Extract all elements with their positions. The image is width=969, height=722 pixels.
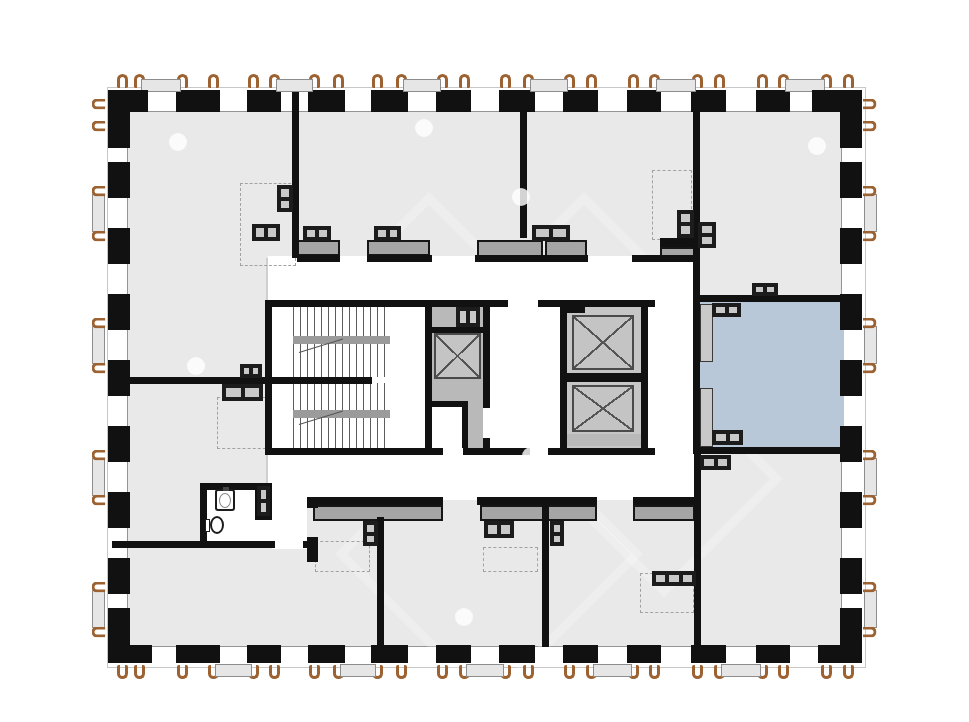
- sink-icon: [223, 487, 229, 491]
- kitchen-counter: [633, 505, 695, 521]
- highlight-dot: [808, 137, 826, 155]
- exterior-wall: [108, 162, 130, 198]
- balcony-anchor-icon: [863, 363, 877, 374]
- balcony-anchor-icon: [92, 231, 106, 242]
- exterior-wall: [108, 426, 130, 462]
- wall: [567, 300, 585, 313]
- balcony-anchor-icon: [843, 665, 854, 679]
- wall: [483, 438, 490, 455]
- fixture-inner: [260, 502, 267, 513]
- window-sill: [864, 590, 877, 628]
- wall: [693, 92, 700, 454]
- appliance-fixture: [222, 384, 263, 401]
- window-sill: [530, 79, 568, 92]
- fixture-inner: [552, 228, 567, 238]
- wall: [633, 497, 700, 505]
- window-sill: [215, 664, 252, 677]
- exterior-wall: [840, 162, 862, 198]
- wall: [112, 541, 275, 548]
- balcony-anchor-icon: [208, 74, 219, 88]
- fixture-inner: [255, 227, 265, 238]
- balcony-anchor-icon: [843, 74, 854, 88]
- balcony-anchor-icon: [117, 74, 128, 88]
- exterior-wall: [840, 558, 862, 594]
- wall: [693, 295, 842, 302]
- wall: [475, 255, 588, 262]
- fixture-inner: [377, 229, 387, 238]
- window-sill: [466, 664, 504, 677]
- appliance-fixture: [456, 307, 480, 327]
- exterior-wall: [371, 90, 408, 112]
- wall: [520, 92, 527, 238]
- wall: [477, 497, 597, 505]
- fixture-inner: [728, 306, 739, 314]
- exterior-wall: [627, 645, 661, 663]
- window-sill: [92, 194, 105, 232]
- highlighted-room: [700, 302, 844, 447]
- appliance-fixture: [712, 430, 743, 445]
- window-sill: [403, 79, 441, 92]
- wall: [265, 377, 372, 384]
- highlight-dot: [455, 608, 473, 626]
- balcony-anchor-icon: [863, 231, 877, 242]
- wall: [567, 373, 641, 382]
- fixture-inner: [682, 574, 693, 583]
- exterior-wall: [840, 360, 862, 396]
- balcony-anchor-icon: [863, 450, 877, 461]
- window-sill: [92, 590, 105, 628]
- door-opening: [255, 520, 272, 541]
- appliance-fixture: [363, 521, 378, 546]
- fixture-inner: [729, 433, 741, 442]
- wall: [538, 300, 655, 307]
- fixture-inner: [701, 225, 713, 234]
- exterior-wall-corner: [108, 92, 130, 148]
- window-sill: [593, 664, 632, 677]
- balcony-anchor-icon: [92, 450, 106, 461]
- elevator-car: [572, 385, 634, 432]
- balcony-anchor-icon: [714, 74, 725, 88]
- wall: [200, 483, 207, 548]
- fixture-inner: [267, 227, 277, 238]
- appliance-fixture: [252, 224, 280, 241]
- balcony-anchor-icon: [396, 665, 407, 679]
- kitchen-counter: [480, 505, 597, 521]
- closet-dashed-outline: [483, 547, 538, 572]
- wall: [641, 300, 648, 455]
- fixture-inner: [366, 524, 375, 533]
- balcony-anchor-icon: [92, 121, 106, 132]
- wall: [303, 541, 318, 548]
- fixture-inner: [252, 367, 259, 375]
- appliance-fixture: [652, 571, 696, 586]
- exterior-wall: [108, 360, 130, 396]
- wall: [560, 300, 567, 455]
- sink-icon: [219, 493, 231, 508]
- exterior-wall-corner: [840, 92, 862, 148]
- fixture-inner: [755, 286, 764, 293]
- fixture-inner: [244, 387, 261, 398]
- exterior-wall-corner: [108, 645, 152, 663]
- fixture-inner: [225, 387, 242, 398]
- wall: [693, 447, 842, 454]
- exterior-wall: [247, 90, 281, 112]
- fixture-inner: [703, 458, 715, 467]
- exterior-wall: [840, 294, 862, 330]
- window-sill: [864, 458, 877, 496]
- exterior-wall: [108, 294, 130, 330]
- fixture-inner: [243, 367, 250, 375]
- exterior-wall: [176, 645, 220, 663]
- exterior-wall: [840, 492, 862, 528]
- closet-dashed-outline: [315, 541, 370, 572]
- fixture-inner: [280, 188, 290, 198]
- exterior-wall: [840, 426, 862, 462]
- balcony-anchor-icon: [117, 665, 128, 679]
- highlight-dot: [169, 133, 187, 151]
- balcony-anchor-icon: [564, 665, 575, 679]
- window-sill: [864, 194, 877, 232]
- service-room-floor: [432, 407, 462, 448]
- fixture-inner: [701, 236, 713, 245]
- appliance-fixture: [700, 455, 731, 470]
- wall: [660, 238, 700, 247]
- window-sill: [340, 664, 376, 677]
- fixture-inner: [535, 228, 550, 238]
- appliance-fixture: [374, 226, 401, 241]
- fixture-inner: [280, 200, 290, 210]
- window-sill: [92, 458, 105, 496]
- exterior-wall: [563, 90, 598, 112]
- fixture-inner: [553, 524, 561, 533]
- wall: [377, 517, 384, 647]
- kitchen-counter: [297, 240, 340, 256]
- balcony-anchor-icon: [863, 99, 877, 110]
- fixture-inner: [668, 574, 679, 583]
- fixture-inner: [366, 535, 375, 544]
- fixture-inner: [260, 489, 267, 500]
- balcony-anchor-icon: [649, 665, 660, 679]
- fixture-inner: [389, 229, 399, 238]
- fixture-inner: [715, 433, 727, 442]
- window-sill: [656, 79, 696, 92]
- window-sill: [864, 326, 877, 364]
- corridor: [272, 490, 307, 549]
- exterior-wall: [108, 228, 130, 264]
- appliance-fixture: [240, 364, 262, 378]
- wall: [483, 300, 490, 408]
- exterior-wall: [176, 90, 220, 112]
- fixture-inner: [487, 524, 498, 535]
- wall: [462, 401, 468, 448]
- highlight-dot: [522, 447, 540, 465]
- exterior-wall: [308, 90, 345, 112]
- appliance-fixture: [712, 303, 741, 317]
- balcony-anchor-icon: [92, 318, 106, 329]
- balcony-anchor-icon: [92, 495, 106, 506]
- exterior-wall-corner: [840, 608, 862, 645]
- exterior-wall: [308, 645, 345, 663]
- balcony-anchor-icon: [309, 665, 320, 679]
- balcony-anchor-icon: [863, 186, 877, 197]
- wall: [297, 255, 340, 262]
- balcony-anchor-icon: [92, 363, 106, 374]
- balcony-anchor-icon: [628, 74, 639, 88]
- wall: [425, 300, 432, 455]
- balcony-anchor-icon: [863, 582, 877, 593]
- balcony-anchor-icon: [92, 99, 106, 110]
- highlight-dot: [187, 357, 205, 375]
- appliance-fixture: [277, 185, 293, 212]
- floor-plan-page: [0, 0, 969, 722]
- appliance-fixture: [550, 521, 564, 546]
- exterior-wall: [627, 90, 661, 112]
- exterior-wall: [436, 90, 471, 112]
- toilet-icon: [210, 516, 224, 534]
- exterior-wall: [691, 645, 726, 663]
- highlight-dot: [512, 188, 530, 206]
- elevator-car: [434, 333, 481, 379]
- exterior-wall: [247, 645, 281, 663]
- balcony-anchor-icon: [778, 665, 789, 679]
- appliance-fixture: [677, 210, 694, 238]
- wall: [694, 454, 701, 647]
- exterior-wall: [691, 90, 726, 112]
- appliance-fixture: [698, 222, 716, 248]
- balcony-anchor-icon: [269, 665, 280, 679]
- exterior-wall: [840, 228, 862, 264]
- exterior-wall: [756, 90, 790, 112]
- wall: [112, 377, 268, 384]
- floor-plan: [0, 0, 969, 722]
- wall: [292, 92, 299, 258]
- wall: [265, 448, 443, 455]
- window-sill: [721, 664, 761, 677]
- fixture-inner: [680, 213, 691, 223]
- exterior-wall: [108, 492, 130, 528]
- window-sill: [92, 326, 105, 364]
- balcony-anchor-icon: [92, 582, 106, 593]
- window-sill: [276, 79, 313, 92]
- fixture-inner: [680, 225, 691, 235]
- wall: [463, 448, 530, 455]
- fixture-inner: [318, 229, 328, 238]
- exterior-wall: [499, 645, 535, 663]
- fixture-inner: [500, 524, 511, 535]
- fixture-inner: [766, 286, 775, 293]
- elevator-pit: [567, 434, 641, 446]
- fixture-inner: [553, 535, 561, 544]
- balcony-anchor-icon: [863, 627, 877, 638]
- wall: [265, 300, 508, 307]
- exterior-wall: [756, 645, 790, 663]
- balcony-anchor-icon: [248, 74, 259, 88]
- wall: [307, 497, 318, 508]
- appliance-fixture: [752, 283, 778, 296]
- exterior-wall: [499, 90, 535, 112]
- balcony-anchor-icon: [821, 665, 832, 679]
- fixture-inner: [469, 310, 477, 324]
- appliance-fixture: [532, 225, 570, 241]
- balcony-anchor-icon: [333, 74, 344, 88]
- balcony-anchor-icon: [863, 121, 877, 132]
- balcony-anchor-icon: [863, 318, 877, 329]
- fixture-inner: [459, 310, 467, 324]
- door-opening: [483, 408, 490, 438]
- wall: [542, 497, 549, 647]
- balcony-anchor-icon: [692, 665, 703, 679]
- wall: [310, 497, 443, 505]
- highlight-dot: [415, 119, 433, 137]
- exterior-wall: [371, 645, 408, 663]
- balcony-anchor-icon: [459, 74, 470, 88]
- exterior-wall: [108, 558, 130, 594]
- appliance-fixture: [484, 521, 514, 538]
- balcony-anchor-icon: [863, 495, 877, 506]
- balcony-anchor-icon: [92, 186, 106, 197]
- balcony-anchor-icon: [500, 74, 511, 88]
- exterior-wall-corner: [108, 608, 130, 645]
- fixture-inner: [717, 458, 729, 467]
- fixture-inner: [655, 574, 666, 583]
- appliance-fixture: [303, 226, 331, 241]
- balcony-anchor-icon: [134, 665, 145, 679]
- appliance-fixture: [257, 486, 270, 516]
- wall: [632, 255, 700, 262]
- balcony-anchor-icon: [177, 665, 188, 679]
- wall: [367, 255, 432, 262]
- fixture-inner: [306, 229, 316, 238]
- exterior-wall: [436, 645, 471, 663]
- balcony-anchor-icon: [372, 74, 383, 88]
- balcony-anchor-icon: [437, 665, 448, 679]
- kitchen-counter: [367, 240, 430, 256]
- balcony-anchor-icon: [586, 74, 597, 88]
- balcony-anchor-icon: [523, 665, 534, 679]
- fixture-inner: [715, 306, 726, 314]
- exterior-wall: [563, 645, 598, 663]
- elevator-car: [572, 315, 634, 370]
- balcony-anchor-icon: [757, 74, 768, 88]
- exterior-wall-corner: [818, 645, 862, 663]
- balcony-anchor-icon: [92, 627, 106, 638]
